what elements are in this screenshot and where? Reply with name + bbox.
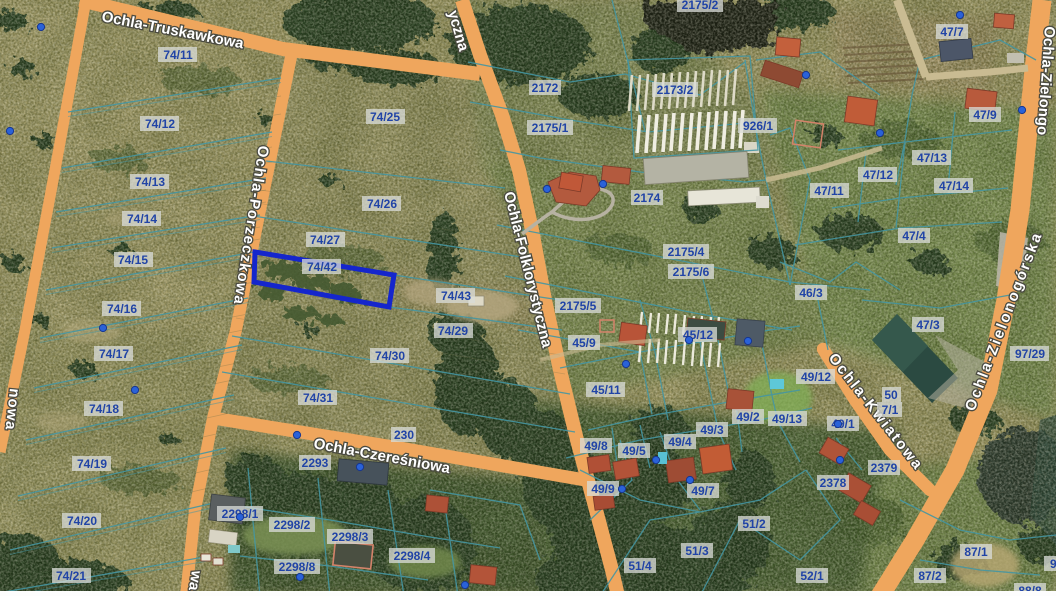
svg-text:74/11: 74/11 [163,48,193,62]
svg-text:51/2: 51/2 [742,517,766,531]
svg-text:47/12: 47/12 [863,168,893,182]
svg-text:51/4: 51/4 [628,559,652,573]
svg-text:2175/2: 2175/2 [682,0,719,12]
svg-text:2298/4: 2298/4 [394,549,431,563]
svg-text:47/9: 47/9 [973,108,997,122]
svg-text:2175/5: 2175/5 [560,299,597,313]
svg-text:51/3: 51/3 [685,544,709,558]
svg-text:74/16: 74/16 [107,302,137,316]
svg-text:2293: 2293 [302,456,329,470]
svg-text:2298/3: 2298/3 [332,530,369,544]
svg-text:74/26: 74/26 [367,197,397,211]
svg-text:74/29: 74/29 [438,324,468,338]
svg-text:74/14: 74/14 [127,212,157,226]
svg-text:74/25: 74/25 [370,110,400,124]
svg-text:49/12: 49/12 [801,370,831,384]
svg-text:47/14: 47/14 [939,179,969,193]
svg-text:230: 230 [394,428,414,442]
svg-text:2379: 2379 [871,461,898,475]
svg-text:49/2: 49/2 [736,410,760,424]
svg-text:47/13: 47/13 [917,151,947,165]
svg-text:87/1: 87/1 [964,545,988,559]
svg-text:52/1: 52/1 [800,569,824,583]
svg-text:46/3: 46/3 [799,286,823,300]
svg-text:2172: 2172 [532,81,559,95]
svg-text:49/3: 49/3 [700,423,724,437]
svg-text:49/8: 49/8 [584,439,608,453]
svg-text:2298/2: 2298/2 [274,518,311,532]
svg-text:926/1: 926/1 [743,119,773,133]
svg-text:97/29: 97/29 [1015,347,1045,361]
svg-text:74/12: 74/12 [145,117,175,131]
svg-text:50: 50 [884,388,898,402]
svg-text:74/13: 74/13 [135,175,165,189]
svg-text:74/18: 74/18 [89,402,119,416]
svg-text:wa: wa [185,568,205,592]
svg-text:45/9: 45/9 [572,336,596,350]
svg-text:47/7: 47/7 [940,25,964,39]
svg-text:2298/8: 2298/8 [279,560,316,574]
svg-text:74/31: 74/31 [303,391,333,405]
svg-text:49/4: 49/4 [668,435,692,449]
svg-text:74/15: 74/15 [118,253,148,267]
svg-text:74/19: 74/19 [77,457,107,471]
svg-text:74/27: 74/27 [310,233,340,247]
svg-text:2175/6: 2175/6 [673,265,710,279]
svg-text:49/5: 49/5 [622,444,646,458]
svg-text:74/17: 74/17 [99,347,129,361]
svg-text:2175/1: 2175/1 [532,121,569,135]
svg-text:87/2: 87/2 [918,569,942,583]
svg-text:2174: 2174 [634,191,661,205]
svg-text:47/11: 47/11 [814,184,844,198]
svg-text:2173/2: 2173/2 [657,83,694,97]
svg-text:49/7: 49/7 [691,484,715,498]
svg-text:74/30: 74/30 [375,349,405,363]
svg-text:74/42: 74/42 [307,260,337,274]
svg-text:2175/4: 2175/4 [668,245,705,259]
svg-text:9: 9 [1050,557,1056,571]
svg-text:7/1: 7/1 [882,403,899,417]
svg-text:45/11: 45/11 [591,383,621,397]
svg-text:74/43: 74/43 [441,289,471,303]
svg-text:2378: 2378 [820,476,847,490]
svg-text:74/21: 74/21 [56,569,86,583]
svg-text:47/4: 47/4 [902,229,926,243]
svg-text:47/3: 47/3 [916,318,940,332]
svg-text:74/20: 74/20 [67,514,97,528]
svg-text:49/13: 49/13 [772,412,802,426]
svg-text:49/9: 49/9 [591,482,615,496]
